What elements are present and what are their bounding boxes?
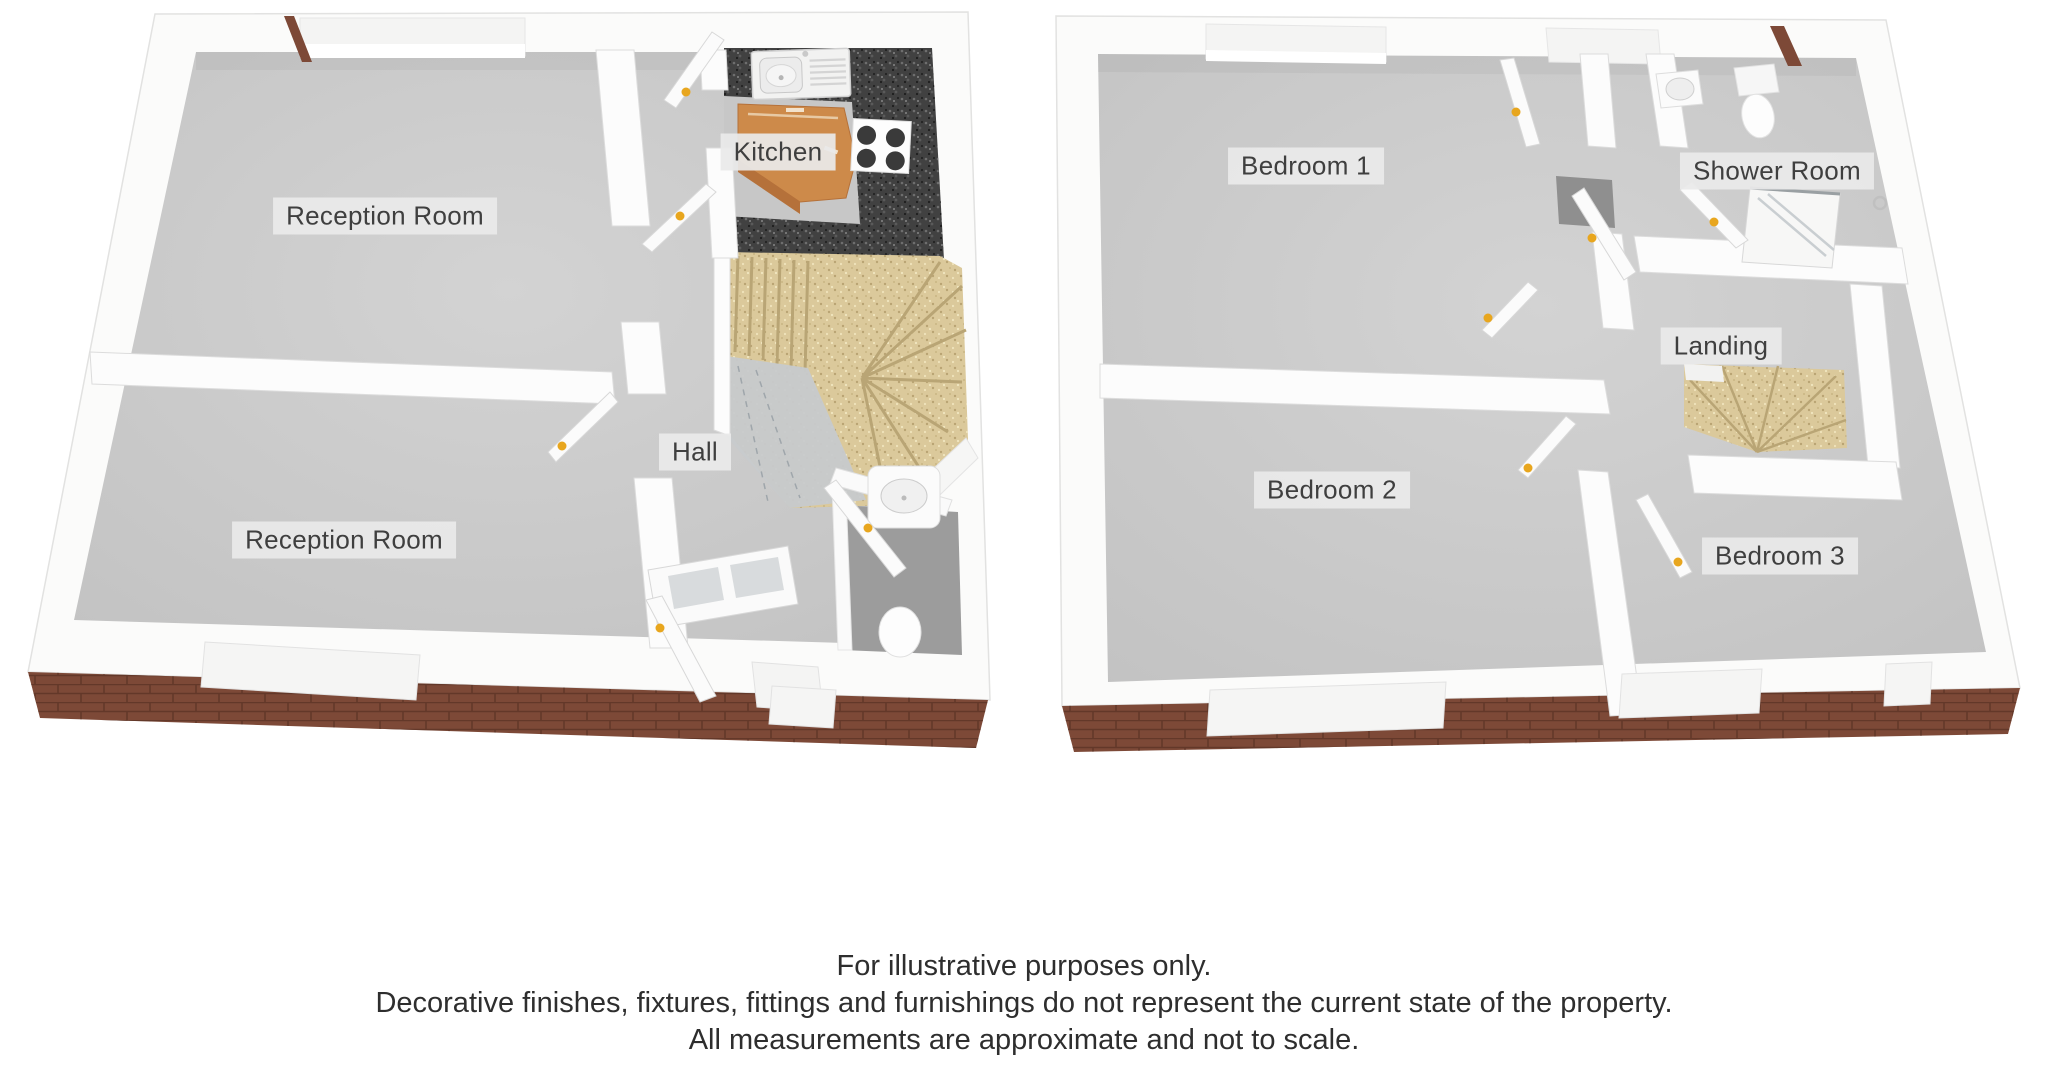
- wc-basin: [868, 466, 940, 528]
- wc-front-window: [769, 686, 836, 728]
- corner-front-window: [1884, 662, 1932, 706]
- room-label-bedroom-2: Bedroom 2: [1254, 472, 1410, 509]
- stairs-side-wall: [714, 258, 730, 436]
- room-label-landing: Landing: [1661, 328, 1782, 365]
- wc-door-handle: [864, 524, 873, 533]
- shower-tray: [1742, 188, 1840, 268]
- floorplan-page: Reception Room Kitchen Reception Room Ha…: [0, 0, 2048, 1065]
- bedroom2-front-window: [1207, 682, 1446, 736]
- room-label-hall: Hall: [659, 434, 731, 471]
- room-label-reception-room-2: Reception Room: [232, 522, 456, 559]
- reception1-back-window: [284, 16, 525, 62]
- hall-wall-segment-2: [621, 322, 666, 394]
- first-floor-plan: [1056, 16, 2020, 752]
- disclaimer-line-1: For illustrative purposes only.: [0, 948, 2048, 985]
- bedroom3-front-window: [1619, 669, 1762, 718]
- bedroom1-back-window: [1206, 24, 1386, 64]
- room-label-kitchen: Kitchen: [721, 134, 836, 171]
- room-label-reception-room-1: Reception Room: [273, 198, 497, 235]
- disclaimer-line-2: Decorative finishes, fixtures, fittings …: [0, 985, 2048, 1022]
- room-label-bedroom-3: Bedroom 3: [1702, 538, 1858, 575]
- room-label-shower-room: Shower Room: [1680, 153, 1874, 190]
- bedroom3-north-wall: [1688, 455, 1902, 500]
- kitchen-hob: [851, 119, 912, 174]
- kitchen-sink-unit: [751, 48, 851, 99]
- disclaimer-text: For illustrative purposes only. Decorati…: [0, 948, 2048, 1059]
- shower-basin: [1656, 70, 1703, 108]
- disclaimer-line-3: All measurements are approximate and not…: [0, 1022, 2048, 1059]
- ground-floor-plan: [28, 12, 990, 748]
- room-label-bedroom-1: Bedroom 1: [1228, 148, 1384, 185]
- stairwell-top-step: [1684, 364, 1724, 382]
- wc-toilet: [879, 607, 921, 657]
